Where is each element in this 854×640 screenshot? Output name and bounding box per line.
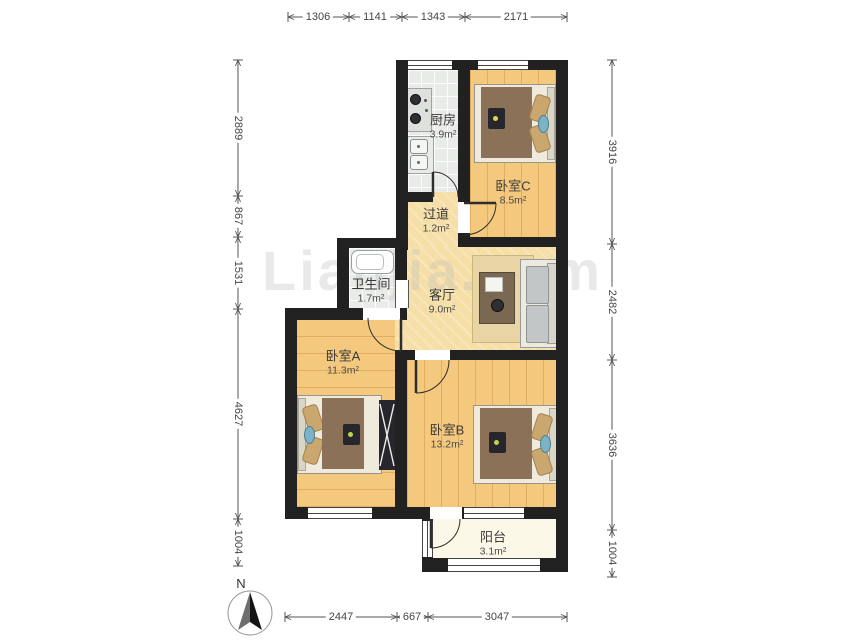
- wall: [450, 350, 568, 360]
- window: [478, 60, 528, 70]
- dim-left-3: 4627: [232, 399, 244, 429]
- burner-icon: [410, 94, 421, 105]
- sofa: [520, 259, 558, 348]
- wall: [395, 350, 415, 360]
- window: [464, 507, 524, 519]
- dim-right-2: 3636: [606, 430, 618, 460]
- wall: [395, 350, 407, 519]
- wardrobe: [379, 400, 395, 470]
- wall: [458, 60, 470, 202]
- stove: [406, 88, 432, 132]
- wall: [556, 60, 568, 572]
- kitchen-sink: [406, 136, 434, 174]
- north-label: N: [236, 576, 245, 591]
- floor-plan: Lianjia.com: [0, 0, 854, 640]
- dim-left-0: 2889: [232, 113, 244, 143]
- wall: [395, 238, 407, 280]
- sink-basin: [410, 155, 428, 170]
- coffee-table: [479, 272, 515, 324]
- room-label-kitchen: 厨房3.9m²: [430, 112, 457, 141]
- room-label-bathroom: 卫生间1.7m²: [351, 276, 390, 305]
- wall: [458, 237, 568, 247]
- wall: [396, 192, 433, 202]
- sink-basin: [410, 139, 428, 154]
- stove-knob: [424, 99, 427, 102]
- wall: [396, 60, 408, 250]
- bathtub: [351, 250, 394, 274]
- window: [422, 521, 433, 557]
- stove-knob: [425, 109, 428, 112]
- dim-top-2: 1343: [418, 11, 448, 23]
- wall: [400, 308, 407, 320]
- dim-top-3: 2171: [501, 11, 531, 23]
- dim-top-0: 1306: [303, 11, 333, 23]
- dim-bottom-1: 667: [400, 611, 424, 623]
- dim-left-1: 867: [232, 204, 244, 228]
- window: [408, 60, 452, 70]
- dim-bottom-2: 3047: [482, 611, 512, 623]
- door-zone-floor: [395, 320, 407, 350]
- room-label-bedroom-c: 卧室C8.5m²: [495, 178, 530, 207]
- room-label-balcony: 阳台3.1m²: [480, 529, 507, 558]
- compass-icon: [228, 591, 272, 635]
- dim-right-1: 2482: [606, 287, 618, 317]
- window: [308, 507, 372, 519]
- room-label-living-room: 客厅9.0m²: [429, 287, 456, 316]
- bathroom-door: [395, 280, 409, 308]
- room-label-bedroom-a: 卧室A11.3m²: [326, 348, 361, 377]
- bed: [473, 405, 558, 484]
- dim-left-2: 1531: [232, 258, 244, 288]
- room-label-hallway: 过道1.2m²: [423, 206, 450, 235]
- dim-bottom-0: 2447: [326, 611, 356, 623]
- window: [448, 558, 540, 572]
- wall: [458, 192, 470, 202]
- dim-left-4: 1004: [232, 527, 244, 557]
- burner-icon: [410, 113, 421, 124]
- dim-right-0: 3916: [606, 137, 618, 167]
- dim-top-1: 1141: [360, 11, 390, 23]
- dim-right-3: 1004: [606, 538, 618, 568]
- bed: [297, 395, 382, 474]
- wall: [285, 308, 297, 519]
- bed: [474, 84, 556, 163]
- room-label-bedroom-b: 卧室B13.2m²: [430, 422, 465, 451]
